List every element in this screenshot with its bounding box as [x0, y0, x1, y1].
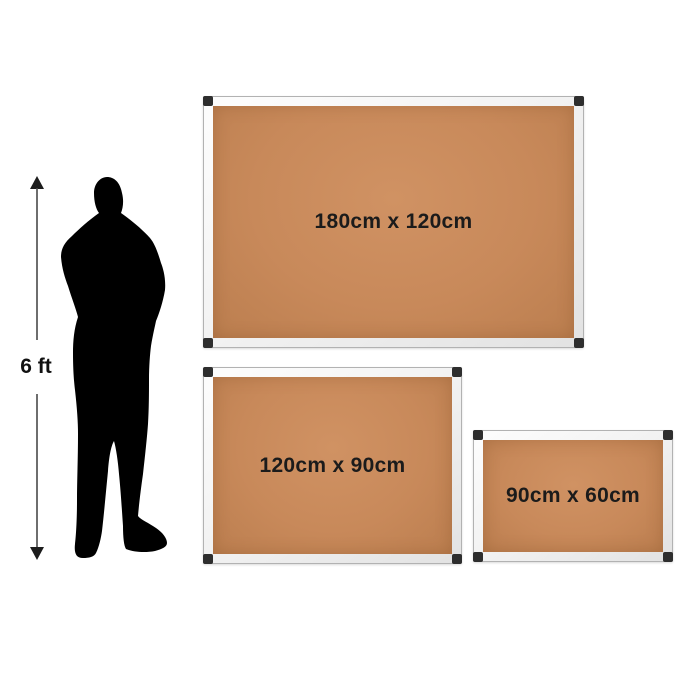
corner-cap-icon [203, 338, 213, 348]
corner-cap-icon [452, 554, 462, 564]
man-silhouette-icon [59, 176, 171, 560]
cork-surface: 180cm x 120cm [213, 106, 574, 338]
board-size-label: 90cm x 60cm [506, 484, 640, 508]
corner-cap-icon [203, 554, 213, 564]
corner-cap-icon [663, 430, 673, 440]
cork-surface: 120cm x 90cm [213, 377, 452, 554]
corner-cap-icon [203, 367, 213, 377]
cork-board-120x90: 120cm x 90cm [203, 367, 462, 564]
corner-cap-icon [574, 338, 584, 348]
cork-surface: 90cm x 60cm [483, 440, 663, 552]
corner-cap-icon [473, 552, 483, 562]
height-reference-label: 6 ft [10, 355, 62, 379]
corner-cap-icon [473, 430, 483, 440]
cork-board-180x120: 180cm x 120cm [203, 96, 584, 348]
board-size-label: 180cm x 120cm [314, 210, 472, 234]
corner-cap-icon [452, 367, 462, 377]
corner-cap-icon [574, 96, 584, 106]
corner-cap-icon [663, 552, 673, 562]
size-comparison-graphic: 6 ft 180cm x 120cm 120cm x 90cm 90cm x 6… [0, 0, 700, 700]
corner-cap-icon [203, 96, 213, 106]
board-size-label: 120cm x 90cm [259, 454, 405, 478]
cork-board-90x60: 90cm x 60cm [473, 430, 673, 562]
